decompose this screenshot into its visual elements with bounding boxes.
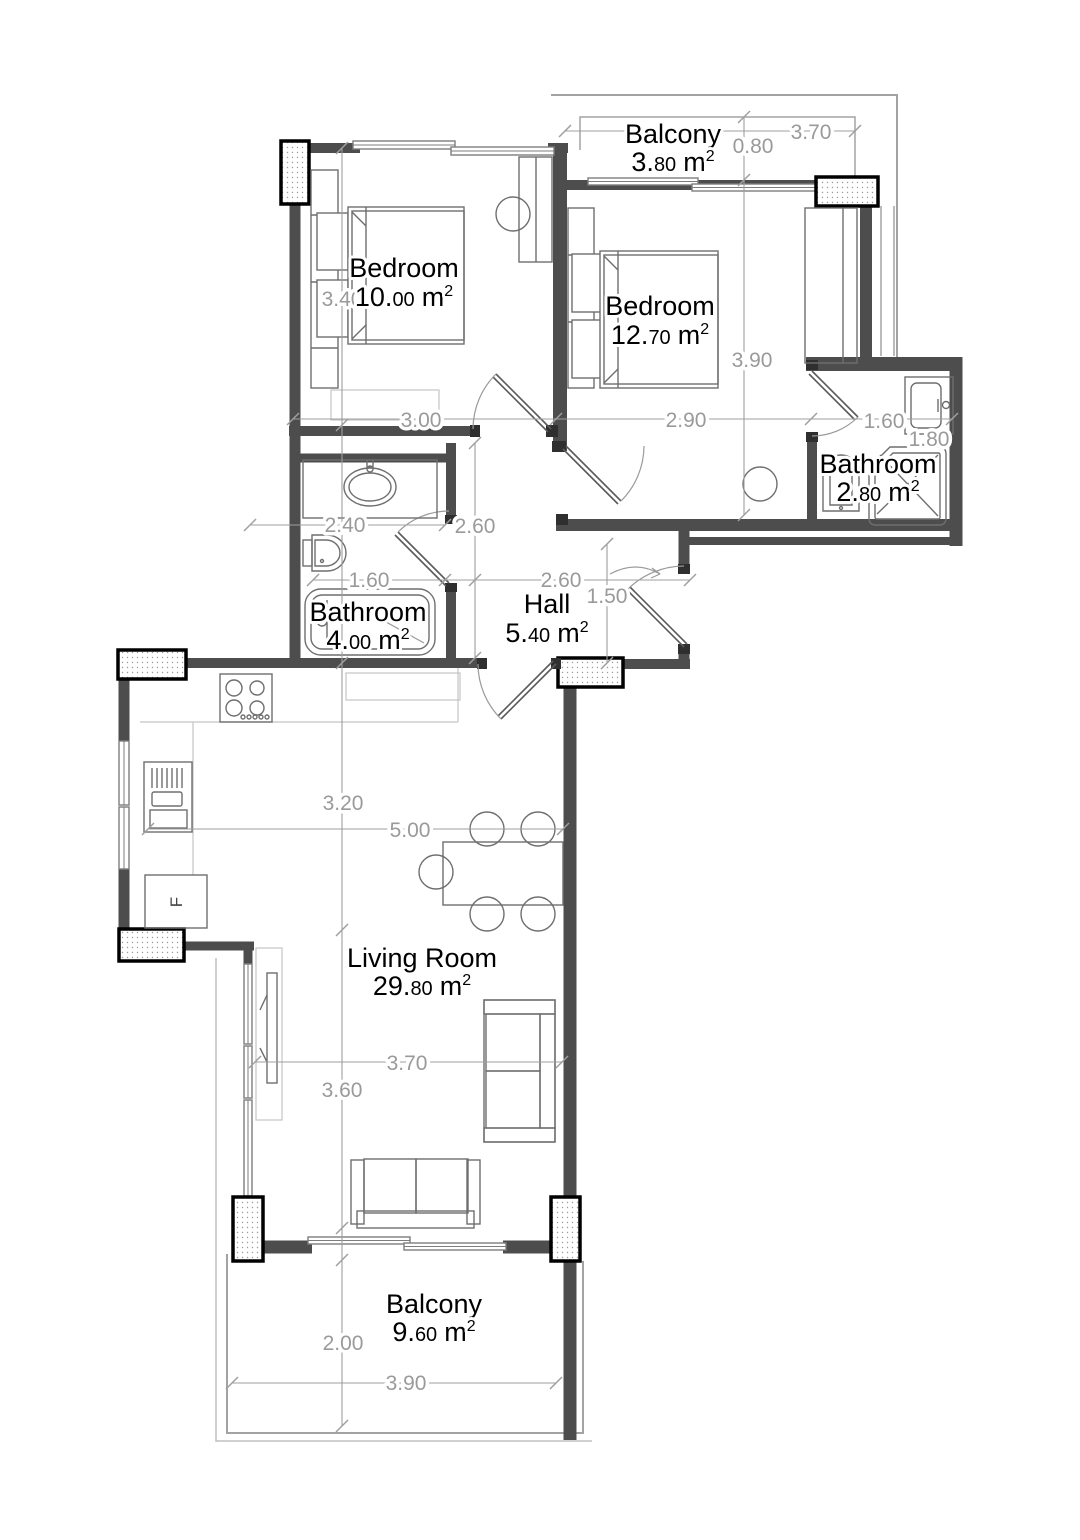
area-unit: m <box>440 971 463 1001</box>
area-main: 29. <box>373 971 411 1001</box>
pillar <box>558 658 623 687</box>
area-sup: 2 <box>401 626 410 643</box>
area-main: 10. <box>355 282 393 312</box>
room-area-hall: 5.40m2 <box>505 618 588 648</box>
area-frac: 80 <box>410 978 432 1000</box>
room-name-balcony-top: Balcony <box>625 119 722 149</box>
sofa-right <box>484 1000 555 1142</box>
floor-plan-page: F <box>0 0 1080 1540</box>
area-unit: m <box>444 1317 467 1347</box>
sink <box>905 377 953 434</box>
window-bedroom-1 <box>353 141 554 155</box>
pillar <box>233 1197 263 1261</box>
area-main: 12. <box>611 320 649 350</box>
bedroom1-wardrobe <box>311 170 338 388</box>
vanity-sink <box>303 460 437 518</box>
door-bedroom-1 <box>473 374 551 432</box>
area-unit: m <box>557 618 580 648</box>
area-sup: 2 <box>911 478 920 495</box>
sofa-bottom <box>351 1159 480 1228</box>
dim-balcony-bottom-depth: 2.00 <box>323 1332 364 1355</box>
kitchen-sink <box>144 762 192 832</box>
stool <box>496 197 530 231</box>
area-sup: 2 <box>706 148 715 165</box>
pillars <box>118 141 878 1261</box>
room-name-bathroom-left: Bathroom <box>309 597 426 627</box>
stool <box>743 467 777 501</box>
pillar <box>281 141 309 204</box>
area-sup: 2 <box>467 1318 476 1335</box>
nightstand <box>572 320 601 378</box>
area-main: 2. <box>836 477 859 507</box>
dim-living-inner-width: 3.70 <box>387 1052 428 1075</box>
area-frac: 70 <box>648 327 670 349</box>
dim-bedroom1-width: 3.00 <box>401 409 442 432</box>
nightstand <box>572 254 601 312</box>
area-main: 5. <box>505 618 528 648</box>
dim-bathroom-left-top-width: 2.40 <box>325 514 366 537</box>
dim-bedroom2-height: 3.90 <box>732 349 773 372</box>
room-name-living: Living Room <box>347 943 497 973</box>
area-main: 4. <box>326 625 349 655</box>
fridge-label: F <box>167 897 186 907</box>
furniture: F <box>140 157 953 1228</box>
area-frac: 00 <box>392 289 414 311</box>
room-area-bathroom-left: 4.00m2 <box>326 625 409 655</box>
room-area-bathroom-right: 2.80m2 <box>836 477 919 507</box>
dim-living-width: 5.00 <box>390 819 431 842</box>
floor-plan: F <box>0 0 1080 1540</box>
dim-balcony-top-depth: 0.80 <box>733 135 774 158</box>
area-unit: m <box>888 477 911 507</box>
window-kitchen <box>119 741 129 869</box>
room-name-hall: Hall <box>524 589 571 619</box>
bedroom2-wardrobe-right <box>805 208 857 363</box>
area-unit: m <box>422 282 445 312</box>
nightstand <box>317 213 348 270</box>
room-area-balcony-top: 3.80m2 <box>631 147 714 177</box>
area-frac: 60 <box>415 1324 437 1346</box>
toilet <box>303 535 346 571</box>
room-area-living: 29.80m2 <box>373 971 471 1001</box>
dim-bathroom-left-width: 1.60 <box>349 569 390 592</box>
door-bathroom-right <box>809 371 858 436</box>
dining-chair <box>419 812 555 931</box>
dim-hall-entry-depth: 1.50 <box>587 585 628 608</box>
area-frac: 40 <box>528 625 550 647</box>
fridge: F <box>145 875 207 928</box>
room-area-balcony-bottom: 9.60m2 <box>392 1317 475 1347</box>
bedroom1-closet <box>519 157 552 262</box>
dining-table <box>443 842 563 905</box>
area-frac: 80 <box>654 154 676 176</box>
room-name-bedroom-1: Bedroom <box>349 253 459 283</box>
dim-kitchen-height: 3.20 <box>323 792 364 815</box>
dim-bathroom-right-width-outer: 1.80 <box>909 428 950 451</box>
room-name-balcony-bottom: Balcony <box>386 1289 483 1319</box>
area-sup: 2 <box>444 283 453 300</box>
dim-living-height: 3.60 <box>322 1079 363 1102</box>
pillar <box>118 650 186 679</box>
dim-corridor-height: 2.60 <box>455 515 496 538</box>
area-unit: m <box>678 320 701 350</box>
pillar <box>551 1197 580 1261</box>
door-bathroom-left <box>395 511 449 586</box>
kitchen-counter <box>140 668 460 875</box>
room-name-bedroom-2: Bedroom <box>605 291 715 321</box>
area-frac: 80 <box>859 484 881 506</box>
door-jambs <box>445 360 818 669</box>
area-sup: 2 <box>700 321 709 338</box>
area-frac: 00 <box>349 632 371 654</box>
area-main: 9. <box>392 1317 415 1347</box>
area-sup: 2 <box>580 619 589 636</box>
door-bedroom-2 <box>563 446 644 504</box>
dim-balcony-top-width: 3.70 <box>791 121 832 144</box>
area-sup: 2 <box>462 972 471 989</box>
pillar <box>119 929 184 961</box>
stove <box>220 674 272 722</box>
area-unit: m <box>378 625 401 655</box>
window-living-left <box>244 964 252 1196</box>
tv-unit <box>256 948 282 1120</box>
dim-bathroom-right-width: 1.60 <box>864 410 905 433</box>
area-main: 3. <box>631 147 654 177</box>
pillar <box>816 177 878 206</box>
window-living-balcony-slider <box>308 1237 506 1250</box>
dim-bedroom2-width: 2.90 <box>666 409 707 432</box>
dim-balcony-bottom-width: 3.90 <box>386 1372 427 1395</box>
room-name-bathroom-right: Bathroom <box>819 449 936 479</box>
door-hall-living <box>478 661 556 719</box>
area-unit: m <box>683 147 706 177</box>
